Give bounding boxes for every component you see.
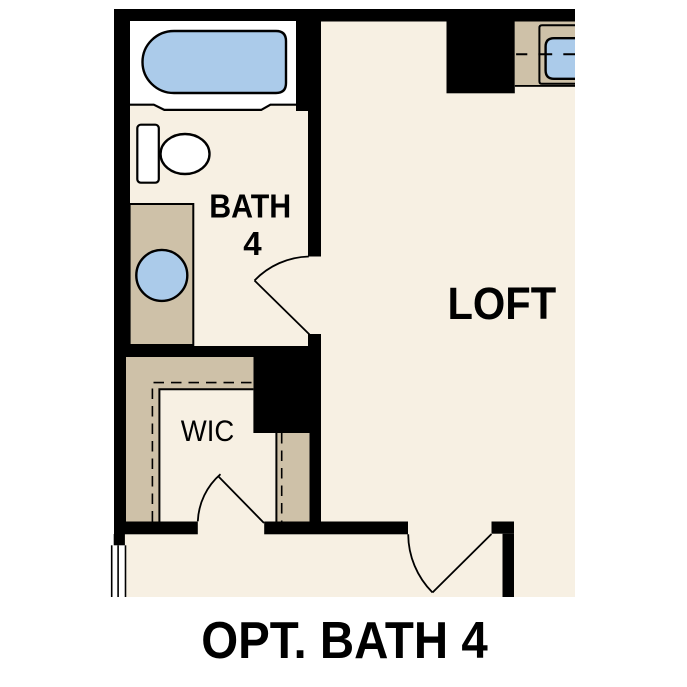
svg-text:LOFT: LOFT — [447, 278, 556, 329]
svg-text:WIC: WIC — [181, 416, 235, 448]
svg-text:OPT. BATH 4: OPT. BATH 4 — [201, 612, 488, 670]
svg-text:4: 4 — [243, 226, 262, 263]
svg-text:BATH: BATH — [209, 189, 291, 226]
